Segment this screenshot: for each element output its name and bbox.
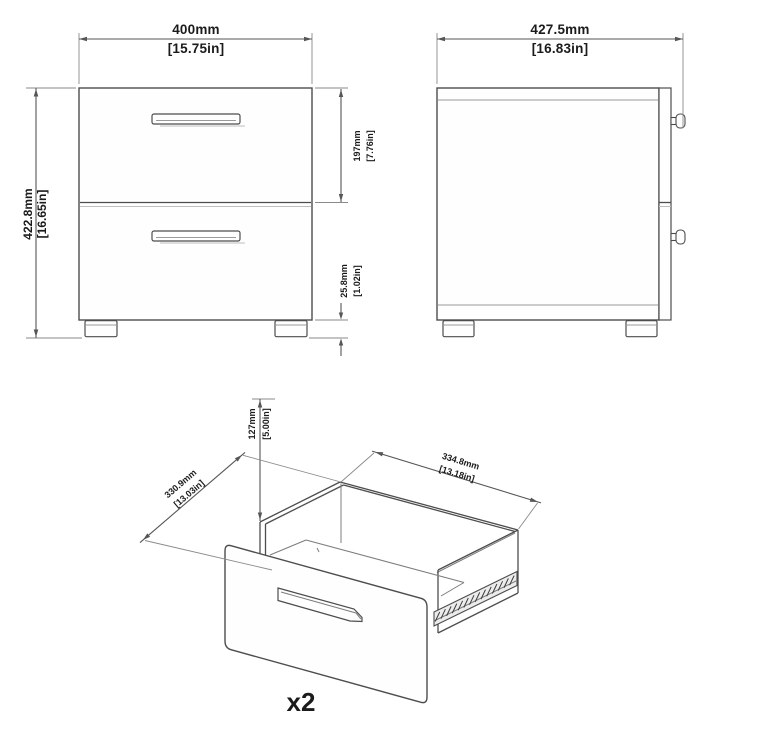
side-foot-right: [626, 321, 657, 337]
arrowhead: [339, 90, 343, 98]
dim-drawer-front-height: 197mm [7.76in]: [315, 88, 375, 203]
side-depth-inch-label: [16.83in]: [532, 41, 589, 56]
drawer-front-mm-label: 197mm: [352, 130, 362, 161]
arrowhead: [339, 194, 343, 202]
cabinet-foot-right: [275, 321, 307, 337]
base-inch-label: [1.02in]: [352, 265, 362, 297]
bottom-drawer-handle: [152, 231, 245, 243]
top-drawer-handle: [152, 114, 245, 126]
drawer-knob-bottom: [671, 230, 685, 244]
arrowhead: [339, 313, 343, 320]
front-width-inch-label: [15.75in]: [168, 41, 225, 56]
arrowhead: [34, 330, 39, 338]
dim-cabinet-width: 400mm [15.75in]: [79, 22, 312, 84]
side-outline: [437, 88, 659, 320]
front-height-mm-label: 422.8mm: [21, 188, 35, 239]
dim-cabinet-height: 422.8mm [16.65in]: [21, 88, 82, 338]
arrowhead: [675, 37, 683, 42]
drawer-height-mm-label: 127mm: [247, 408, 257, 439]
arrowhead: [79, 37, 87, 42]
drawer-slide-rail: [434, 572, 517, 627]
drawer-front-panel: [225, 545, 427, 702]
arrowhead: [34, 89, 39, 97]
front-view: 400mm [15.75in] 422.8mm [16.65in] 197mm: [21, 22, 375, 356]
arrowhead: [437, 37, 445, 42]
side-depth-mm-label: 427.5mm: [530, 22, 589, 37]
arrowhead: [258, 400, 262, 408]
arrowhead: [530, 498, 538, 502]
front-width-mm-label: 400mm: [172, 22, 220, 37]
side-foot-left: [443, 321, 474, 337]
arrowhead: [304, 37, 312, 42]
base-mm-label: 25.8mm: [339, 264, 349, 298]
side-view: 427.5mm [16.83in]: [437, 22, 685, 337]
drawer-iso-view: 127mm [5.00in] 330.9mm [13.03in] 334.8: [140, 399, 541, 717]
cabinet-foot-left: [85, 321, 117, 337]
front-height-inch-label: [16.65in]: [35, 190, 49, 239]
technical-drawing-page: 400mm [15.75in] 422.8mm [16.65in] 197mm: [0, 0, 768, 752]
drawer-height-inch-label: [5.00in]: [261, 408, 271, 440]
dim-base-height: 25.8mm [1.02in]: [309, 264, 362, 356]
arrowhead: [339, 339, 343, 346]
interior-mark: [317, 548, 319, 552]
quantity-label: x2: [287, 687, 316, 717]
drawer-front-inch-label: [7.76in]: [365, 130, 375, 162]
arrowhead: [258, 513, 262, 521]
drawer-front-edge-strip: [659, 88, 671, 320]
arrowhead: [375, 452, 383, 456]
furniture-dimension-drawing: 400mm [15.75in] 422.8mm [16.65in] 197mm: [0, 0, 768, 752]
